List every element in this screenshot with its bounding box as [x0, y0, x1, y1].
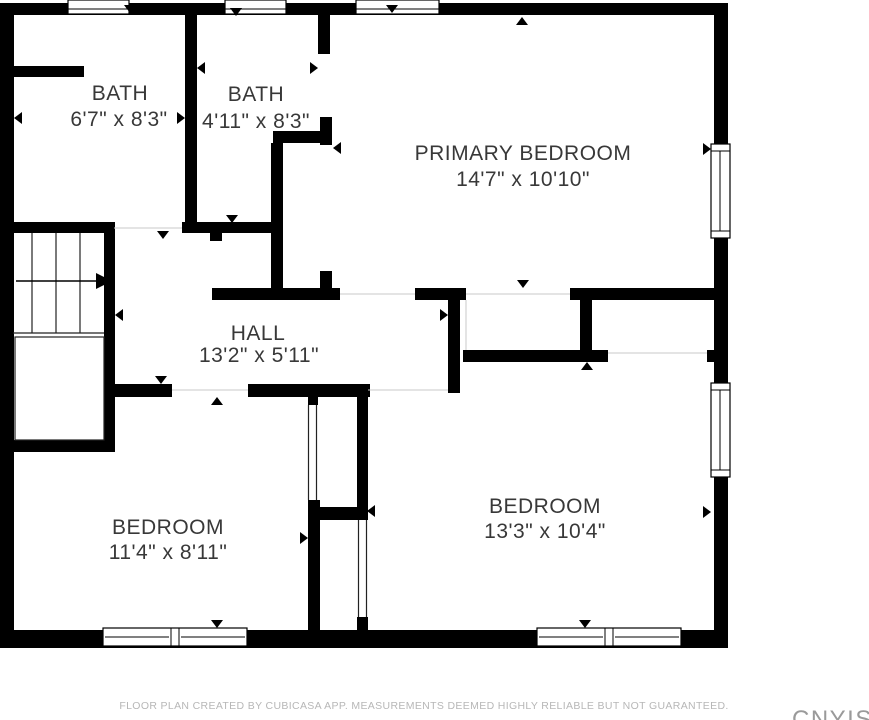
- door-marker: [440, 309, 448, 321]
- door-marker: [581, 362, 593, 370]
- wall-stair-top: [10, 222, 112, 233]
- wall-hall-bottom-left: [107, 384, 172, 397]
- door-marker: [579, 620, 591, 628]
- wall-bedroom-divider-upper: [357, 397, 368, 520]
- room-label-bedroom-left: BEDROOM: [112, 516, 224, 539]
- door-marker: [115, 309, 123, 321]
- room-dims-bath2: 4'11" x 8'3": [202, 110, 310, 133]
- door-marker: [300, 532, 308, 544]
- window-bottom-1: [103, 628, 247, 646]
- door-marker: [157, 231, 169, 239]
- door-marker: [333, 142, 341, 154]
- room-dims-bedroom-left: 11'4" x 8'11": [109, 541, 228, 564]
- door-marker: [211, 397, 223, 405]
- door-marker: [197, 62, 205, 74]
- room-labels: BATH 6'7" x 8'3" BATH 4'11" x 8'3" PRIMA…: [70, 82, 631, 564]
- wall-hall-top-left: [212, 288, 340, 300]
- door-marker: [310, 62, 318, 74]
- door-marker: [211, 620, 223, 628]
- room-dims-primary-bedroom: 14'7" x 10'10": [456, 168, 590, 191]
- window-right-2: [711, 383, 730, 477]
- room-label-bath1: BATH: [92, 82, 148, 105]
- window-top-3: [356, 0, 439, 14]
- wall-bath-divider: [185, 3, 197, 222]
- disclaimer-text: FLOOR PLAN CREATED BY CUBICASA APP. MEAS…: [119, 700, 728, 712]
- room-dims-bath1: 6'7" x 8'3": [70, 108, 167, 131]
- wall-bath2-primary-upper: [318, 3, 330, 54]
- wall-left: [0, 3, 14, 648]
- door-marker: [367, 505, 375, 517]
- wall-bath-bottom: [182, 222, 275, 233]
- wall-closet2-divider: [580, 300, 592, 351]
- door-marker: [703, 143, 711, 155]
- door-marker: [517, 280, 529, 288]
- wall-bath1-stub: [13, 66, 84, 77]
- wall-right: [714, 3, 728, 648]
- wall-primary-bottom: [570, 288, 717, 300]
- door-marker: [177, 112, 185, 124]
- door-marker: [155, 376, 167, 384]
- stairs: [13, 233, 112, 440]
- floor-plan-svg: BATH 6'7" x 8'3" BATH 4'11" x 8'3" PRIMA…: [0, 0, 869, 720]
- wall-hall-bottom-right: [248, 384, 370, 397]
- wall-stair-bottom: [10, 440, 115, 452]
- window-right-1: [711, 144, 730, 238]
- watermark-logo: CNYIS: [792, 706, 869, 720]
- wall-closet-left: [271, 143, 283, 292]
- wall-stair-right: [104, 222, 115, 452]
- wall-closet2-right-stub: [707, 350, 715, 362]
- room-dims-bedroom-right: 13'3" x 10'4": [484, 520, 606, 543]
- room-label-primary-bedroom: PRIMARY BEDROOM: [415, 142, 632, 165]
- wall-closet2-bottom: [463, 350, 608, 362]
- window-top-1: [68, 0, 129, 14]
- wall-closet3-top-stub: [308, 397, 318, 405]
- wall-stub-bath2-door: [210, 233, 222, 241]
- wall-closet4-bottom-stub: [357, 617, 368, 632]
- room-label-hall: HALL: [231, 322, 286, 345]
- wall-closet3-divider: [308, 507, 368, 520]
- door-marker: [516, 17, 528, 25]
- door-marker: [14, 112, 22, 124]
- room-dims-hall: 13'2" x 5'11": [199, 344, 319, 367]
- door-marker: [226, 215, 238, 223]
- stair-landing-outline: [15, 337, 104, 440]
- window-bottom-2: [537, 628, 681, 646]
- door-marker: [703, 506, 711, 518]
- wall-hall-right: [448, 294, 460, 393]
- room-label-bath2: BATH: [228, 83, 284, 106]
- floor-plan-page: BATH 6'7" x 8'3" BATH 4'11" x 8'3" PRIMA…: [0, 0, 869, 720]
- room-label-bedroom-right: BEDROOM: [489, 495, 601, 518]
